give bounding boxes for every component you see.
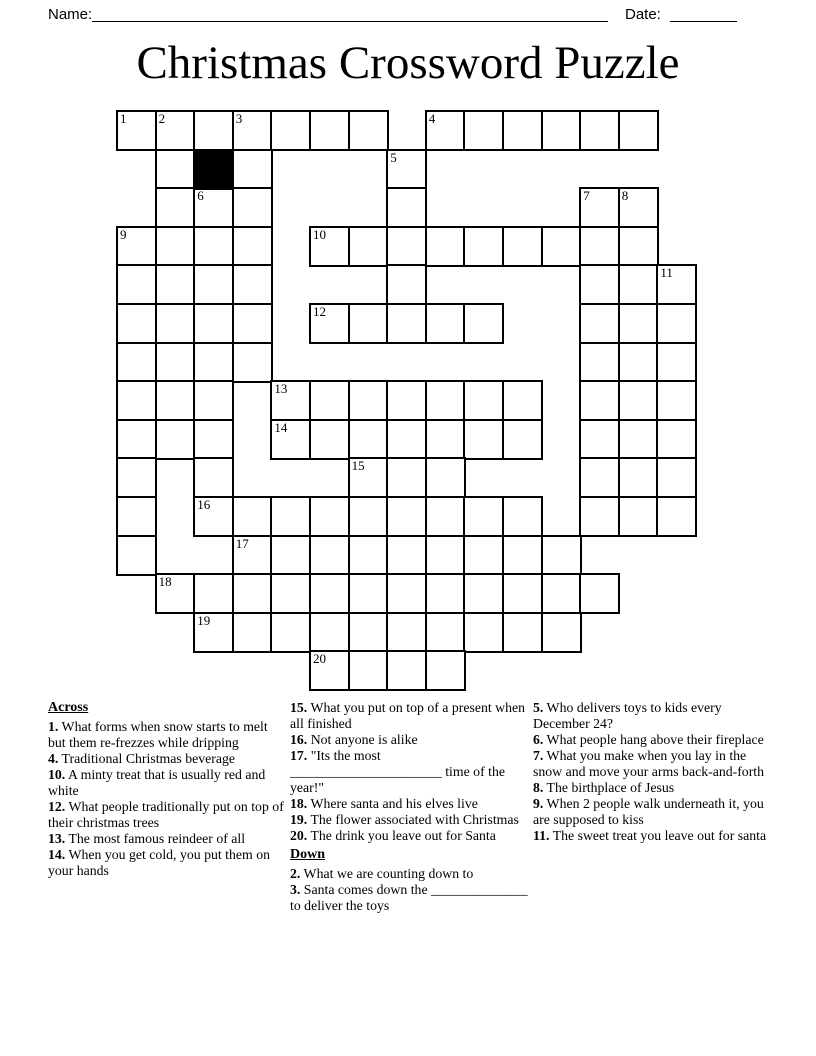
- grid-cell: [541, 573, 582, 614]
- clue-item: 4. Traditional Christmas beverage: [48, 751, 284, 767]
- cell-number: 15: [352, 458, 365, 473]
- grid-cell: [232, 187, 273, 228]
- grid-cell: [116, 496, 157, 537]
- grid-cell: [309, 535, 350, 576]
- grid-cell: [579, 496, 620, 537]
- grid-cell: [618, 226, 659, 267]
- grid-cell: [155, 419, 196, 460]
- grid-cell: 2: [155, 110, 196, 151]
- clue-number: 9.: [533, 796, 543, 811]
- grid-cell: 9: [116, 226, 157, 267]
- grid-cell: [618, 457, 659, 498]
- cell-number: 9: [120, 227, 127, 242]
- grid-cell: [425, 303, 466, 344]
- grid-cell: [193, 110, 234, 151]
- cell-number: 3: [236, 111, 243, 126]
- grid-cell: [270, 496, 311, 537]
- cell-number: 7: [583, 188, 590, 203]
- grid-cell: [270, 612, 311, 653]
- grid-cell: [579, 264, 620, 305]
- cell-number: 6: [197, 188, 204, 203]
- grid-cell: [656, 496, 697, 537]
- grid-cell: [116, 342, 157, 383]
- grid-cell: [656, 303, 697, 344]
- cell-number: 10: [313, 227, 326, 242]
- grid-cell: 4: [425, 110, 466, 151]
- cell-number: 5: [390, 150, 397, 165]
- grid-cell: 1: [116, 110, 157, 151]
- grid-cell: [309, 496, 350, 537]
- grid-cell: 13: [270, 380, 311, 421]
- clue-item: 8. The birthplace of Jesus: [533, 780, 773, 796]
- grid-cell: 14: [270, 419, 311, 460]
- clue-item: 11. The sweet treat you leave out for sa…: [533, 828, 773, 844]
- clue-number: 20.: [290, 828, 307, 843]
- grid-cell: [386, 612, 427, 653]
- grid-cell: [348, 226, 389, 267]
- clue-item: 20. The drink you leave out for Santa: [290, 828, 528, 844]
- grid-cell: 17: [232, 535, 273, 576]
- cell-number: 1: [120, 111, 127, 126]
- clue-item: 12. What people traditionally put on top…: [48, 799, 284, 831]
- clues-section-heading: Across: [48, 700, 284, 716]
- grid-cell: [463, 303, 504, 344]
- grid-cell: [579, 457, 620, 498]
- grid-cell: [463, 573, 504, 614]
- grid-cell: [579, 419, 620, 460]
- grid-cell: [232, 342, 273, 383]
- clues-column-down: 5. Who delivers toys to kids every Decem…: [533, 700, 773, 844]
- grid-cell: [155, 187, 196, 228]
- grid-cell: [386, 380, 427, 421]
- grid-cell: [116, 419, 157, 460]
- clue-number: 14.: [48, 847, 65, 862]
- clue-item: 1. What forms when snow starts to melt b…: [48, 719, 284, 751]
- grid-cell: [270, 573, 311, 614]
- clue-number: 5.: [533, 700, 543, 715]
- grid-cell: 15: [348, 457, 389, 498]
- grid-cell: [425, 573, 466, 614]
- clue-item: 13. The most famous reindeer of all: [48, 831, 284, 847]
- grid-cell: [541, 535, 582, 576]
- grid-cell: 10: [309, 226, 350, 267]
- crossword-grid: 1234567891011121314151617181920: [0, 0, 816, 700]
- grid-cell: [502, 419, 543, 460]
- grid-cell: [193, 303, 234, 344]
- grid-cell: [579, 573, 620, 614]
- grid-cell: [386, 226, 427, 267]
- grid-cell: [656, 342, 697, 383]
- grid-cell: [232, 573, 273, 614]
- cell-number: 8: [622, 188, 629, 203]
- grid-cell: [502, 573, 543, 614]
- clues-column-middle: 15. What you put on top of a present whe…: [290, 700, 528, 914]
- grid-cell: [386, 650, 427, 691]
- clue-item: 15. What you put on top of a present whe…: [290, 700, 528, 732]
- grid-cell: [425, 496, 466, 537]
- grid-cell: [386, 419, 427, 460]
- grid-cell: [309, 110, 350, 151]
- grid-cell: [232, 496, 273, 537]
- grid-cell: 18: [155, 573, 196, 614]
- clue-item: 10. A minty treat that is usually red an…: [48, 767, 284, 799]
- grid-cell: [386, 535, 427, 576]
- grid-cell: [232, 612, 273, 653]
- grid-cell: [155, 303, 196, 344]
- grid-cell: [155, 149, 196, 190]
- grid-cell: [579, 226, 620, 267]
- grid-cell: [618, 342, 659, 383]
- clue-item: 2. What we are counting down to: [290, 866, 528, 882]
- grid-cell: [386, 573, 427, 614]
- clue-item: 16. Not anyone is alike: [290, 732, 528, 748]
- clue-item: 19. The flower associated with Christmas: [290, 812, 528, 828]
- grid-cell: [502, 380, 543, 421]
- grid-cell: [348, 303, 389, 344]
- cell-number: 13: [274, 381, 287, 396]
- grid-cell: [579, 342, 620, 383]
- grid-cell: [386, 187, 427, 228]
- cell-number: 4: [429, 111, 436, 126]
- cell-number: 12: [313, 304, 326, 319]
- grid-cell: [116, 380, 157, 421]
- clue-number: 8.: [533, 780, 543, 795]
- grid-cell: [348, 380, 389, 421]
- grid-cell: [425, 650, 466, 691]
- clue-number: 12.: [48, 799, 65, 814]
- grid-cell: [579, 380, 620, 421]
- grid-cell: [425, 380, 466, 421]
- grid-cell: [502, 535, 543, 576]
- worksheet-page: { "header": { "name_label": "Name:", "da…: [0, 0, 816, 1056]
- clues-section-heading: Down: [290, 847, 528, 863]
- grid-cell: [270, 110, 311, 151]
- grid-cell: [232, 303, 273, 344]
- grid-cell: [618, 380, 659, 421]
- grid-cell: [425, 612, 466, 653]
- clue-number: 17.: [290, 748, 307, 763]
- cell-number: 14: [274, 420, 287, 435]
- grid-cell: [618, 264, 659, 305]
- grid-cell: 7: [579, 187, 620, 228]
- grid-cell: [155, 264, 196, 305]
- clue-number: 15.: [290, 700, 307, 715]
- grid-cell: [541, 110, 582, 151]
- grid-cell: [348, 535, 389, 576]
- grid-cell: [502, 612, 543, 653]
- clue-item: 3. Santa comes down the ______________ t…: [290, 882, 528, 914]
- cell-number: 16: [197, 497, 210, 512]
- grid-cell: [348, 612, 389, 653]
- grid-cell: 19: [193, 612, 234, 653]
- grid-cell: [193, 342, 234, 383]
- grid-cell: [386, 496, 427, 537]
- clue-item: 7. What you make when you lay in the sno…: [533, 748, 773, 780]
- grid-cell: [155, 226, 196, 267]
- grid-cell: 8: [618, 187, 659, 228]
- grid-cell: 20: [309, 650, 350, 691]
- clue-number: 16.: [290, 732, 307, 747]
- grid-cell: [502, 496, 543, 537]
- grid-cell: [309, 380, 350, 421]
- grid-cell: 16: [193, 496, 234, 537]
- grid-cell: [656, 380, 697, 421]
- clue-number: 10.: [48, 767, 65, 782]
- clue-number: 2.: [290, 866, 300, 881]
- grid-cell: [232, 149, 273, 190]
- grid-cell: [425, 457, 466, 498]
- grid-cell: [502, 226, 543, 267]
- grid-cell: [193, 380, 234, 421]
- grid-cell: [463, 110, 504, 151]
- grid-cell: 5: [386, 149, 427, 190]
- grid-cell: [656, 419, 697, 460]
- grid-cell: [348, 496, 389, 537]
- grid-cell: 11: [656, 264, 697, 305]
- grid-cell: [193, 457, 234, 498]
- grid-cell: [193, 264, 234, 305]
- grid-cell: [463, 419, 504, 460]
- black-cell: [193, 149, 234, 190]
- grid-cell: [232, 226, 273, 267]
- grid-cell: [618, 110, 659, 151]
- grid-cell: [463, 496, 504, 537]
- grid-cell: [155, 380, 196, 421]
- grid-cell: [348, 110, 389, 151]
- grid-cell: 12: [309, 303, 350, 344]
- grid-cell: [309, 612, 350, 653]
- grid-cell: [463, 226, 504, 267]
- grid-cell: [463, 380, 504, 421]
- cell-number: 17: [236, 536, 249, 551]
- grid-cell: [425, 535, 466, 576]
- cell-number: 20: [313, 651, 326, 666]
- cell-number: 19: [197, 613, 210, 628]
- grid-cell: [386, 457, 427, 498]
- clue-number: 13.: [48, 831, 65, 846]
- clue-item: 14. When you get cold, you put them on y…: [48, 847, 284, 879]
- clue-item: 17. "Its the most ______________________…: [290, 748, 528, 796]
- grid-cell: [502, 110, 543, 151]
- grid-cell: [386, 264, 427, 305]
- grid-cell: [386, 303, 427, 344]
- grid-cell: [348, 573, 389, 614]
- grid-cell: [425, 226, 466, 267]
- clue-number: 1.: [48, 719, 58, 734]
- grid-cell: [579, 303, 620, 344]
- grid-cell: [116, 535, 157, 576]
- grid-cell: [463, 535, 504, 576]
- clue-item: 6. What people hang above their fireplac…: [533, 732, 773, 748]
- cell-number: 18: [159, 574, 172, 589]
- clue-number: 4.: [48, 751, 58, 766]
- grid-cell: [116, 303, 157, 344]
- grid-cell: [425, 419, 466, 460]
- grid-cell: [270, 535, 311, 576]
- grid-cell: [232, 264, 273, 305]
- grid-cell: [309, 419, 350, 460]
- grid-cell: [463, 612, 504, 653]
- clues-column-across: Across1. What forms when snow starts to …: [48, 700, 284, 879]
- clue-item: 5. Who delivers toys to kids every Decem…: [533, 700, 773, 732]
- grid-cell: [193, 573, 234, 614]
- grid-cell: [618, 419, 659, 460]
- clue-number: 11.: [533, 828, 550, 843]
- cell-number: 2: [159, 111, 166, 126]
- clue-number: 3.: [290, 882, 300, 897]
- grid-cell: [155, 342, 196, 383]
- grid-cell: [656, 457, 697, 498]
- clue-number: 19.: [290, 812, 307, 827]
- grid-cell: [579, 110, 620, 151]
- grid-cell: 3: [232, 110, 273, 151]
- grid-cell: [309, 573, 350, 614]
- clue-number: 6.: [533, 732, 543, 747]
- clue-number: 7.: [533, 748, 543, 763]
- clue-item: 9. When 2 people walk underneath it, you…: [533, 796, 773, 828]
- grid-cell: [618, 496, 659, 537]
- grid-cell: [116, 264, 157, 305]
- grid-cell: [618, 303, 659, 344]
- grid-cell: [541, 226, 582, 267]
- grid-cell: [193, 226, 234, 267]
- grid-cell: [541, 612, 582, 653]
- grid-cell: [193, 419, 234, 460]
- grid-cell: [116, 457, 157, 498]
- grid-cell: 6: [193, 187, 234, 228]
- clue-number: 18.: [290, 796, 307, 811]
- cell-number: 11: [660, 265, 673, 280]
- grid-cell: [348, 650, 389, 691]
- clue-item: 18. Where santa and his elves live: [290, 796, 528, 812]
- grid-cell: [348, 419, 389, 460]
